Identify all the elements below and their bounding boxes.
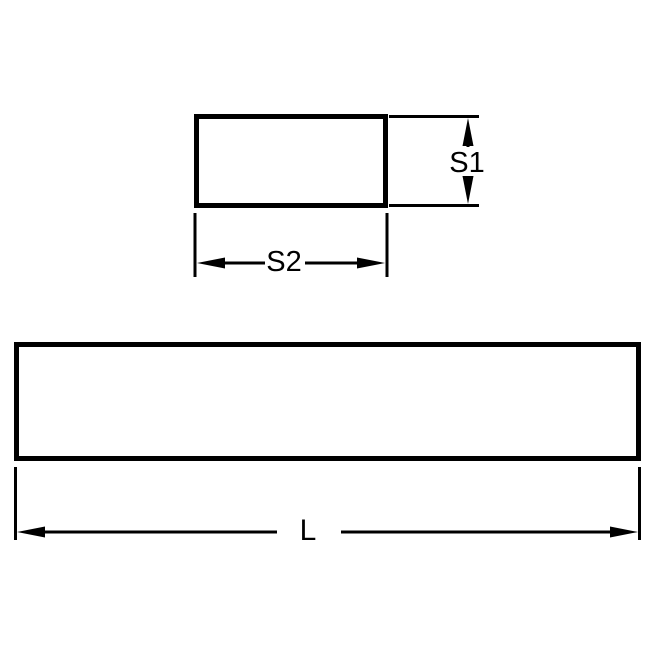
l-arrow-right-icon (610, 527, 638, 538)
cross-section-rect (197, 117, 386, 206)
technical-drawing-canvas: S1 S2 (0, 0, 670, 670)
s2-label: S2 (266, 246, 301, 278)
s1-arrow-down-icon (463, 176, 474, 204)
bar-rect (17, 345, 639, 459)
length-dimension: L (16, 467, 640, 547)
l-arrow-left-icon (17, 527, 45, 538)
s2-dimension: S2 (195, 213, 387, 278)
s2-arrow-right-icon (357, 258, 385, 269)
l-label: L (300, 514, 317, 547)
s2-arrow-left-icon (197, 258, 225, 269)
s1-dimension: S1 (389, 117, 485, 206)
s1-arrow-up-icon (463, 118, 474, 146)
s1-label: S1 (449, 147, 484, 179)
side-view: L (16, 345, 640, 548)
dimension-drawing: S1 S2 (0, 0, 670, 670)
cross-section-view: S1 S2 (195, 117, 485, 279)
